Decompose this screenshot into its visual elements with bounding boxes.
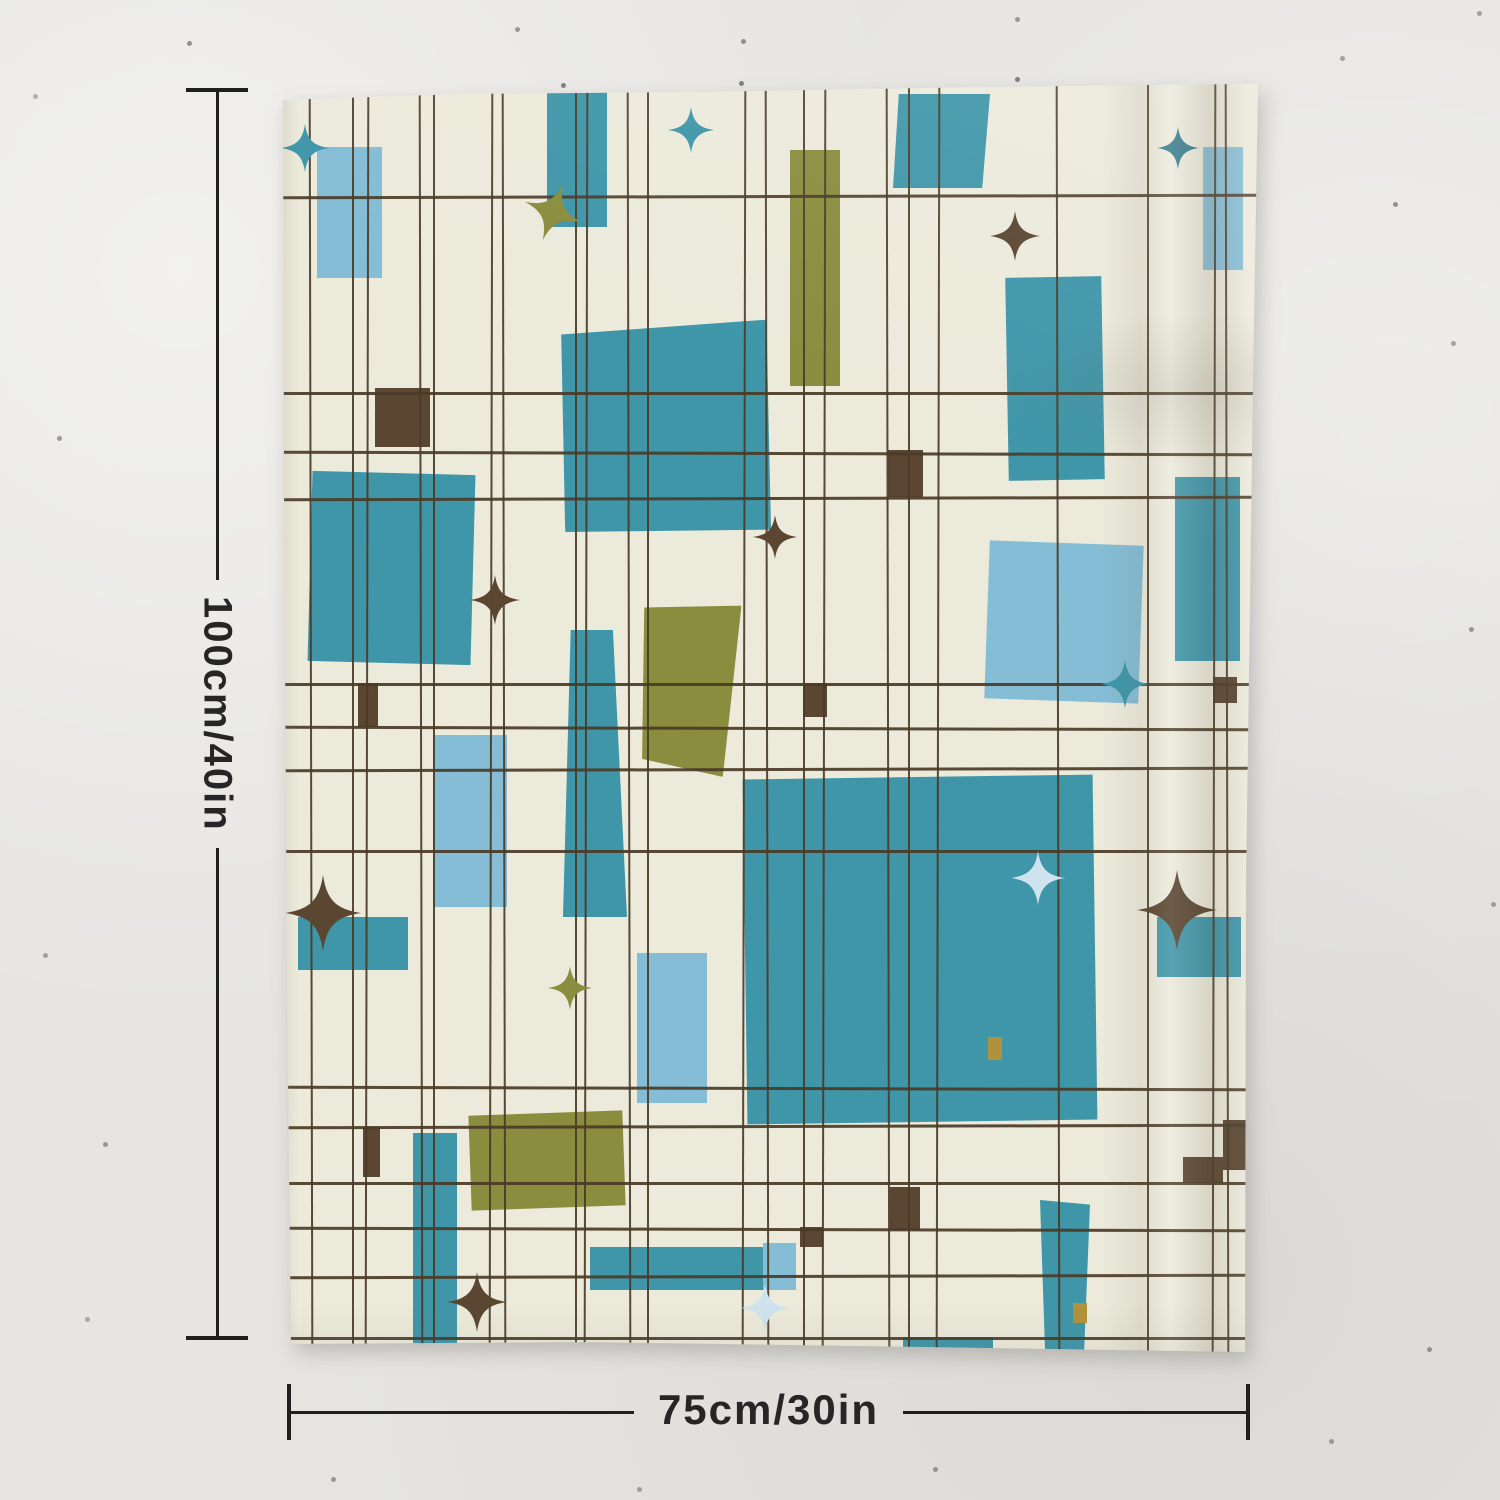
grid-vertical-line	[1147, 84, 1149, 1352]
pattern-rect	[636, 601, 742, 778]
tapestry-fabric	[283, 84, 1258, 1352]
starburst-icon	[1137, 870, 1217, 950]
pattern-rect	[988, 1037, 1002, 1060]
grid-vertical-line	[309, 84, 314, 1352]
tapestry	[283, 84, 1258, 1352]
pattern-rect	[590, 1247, 764, 1290]
grid-vertical-line	[352, 84, 354, 1352]
grid-horizontal-line	[283, 1337, 1258, 1340]
grid-vertical-line	[1056, 84, 1061, 1352]
grid-vertical-line	[936, 84, 941, 1352]
grid-vertical-line	[908, 84, 910, 1352]
starburst-icon	[283, 124, 329, 172]
grid-horizontal-line	[283, 392, 1258, 395]
grid-horizontal-line	[283, 1124, 1258, 1130]
width-dimension-label: 75cm/30in	[634, 1386, 903, 1434]
product-photo-scene: 100cm/40in 75cm/30in	[0, 0, 1500, 1500]
pattern-rect	[1005, 276, 1105, 481]
height-dimension-bottom-cap	[186, 1336, 248, 1340]
pattern-rect	[563, 630, 627, 917]
starburst-icon	[285, 875, 361, 951]
grid-vertical-line	[647, 84, 649, 1352]
pattern-rect	[1073, 1303, 1087, 1323]
pattern-rect	[1175, 477, 1240, 661]
grid-horizontal-line	[283, 726, 1258, 732]
height-dimension-line-lower	[216, 848, 219, 1336]
pattern-rect	[375, 388, 430, 447]
grid-vertical-line	[742, 84, 747, 1352]
starburst-icon	[753, 515, 797, 559]
pattern-rect	[890, 1187, 920, 1230]
pattern-rect	[743, 775, 1098, 1125]
starburst-icon	[447, 1272, 507, 1332]
starburst-icon	[470, 575, 520, 625]
grid-horizontal-line	[283, 767, 1258, 773]
starburst-icon	[548, 966, 592, 1010]
pattern-rect	[433, 735, 507, 907]
grid-vertical-line	[575, 84, 577, 1352]
grid-vertical-line	[803, 84, 805, 1352]
wall-speckles	[0, 0, 3, 3]
grid-horizontal-line	[283, 451, 1258, 457]
starburst-icon	[1101, 660, 1149, 708]
starburst-icon	[1011, 851, 1065, 905]
grid-vertical-line	[765, 84, 770, 1352]
starburst-icon	[741, 1284, 789, 1332]
starburst-icon	[1157, 127, 1199, 169]
height-dimension-label: 100cm/40in	[195, 580, 240, 848]
grid-horizontal-line	[283, 194, 1258, 200]
width-dimension-line-right	[903, 1411, 1246, 1414]
grid-vertical-line	[886, 84, 891, 1352]
grid-horizontal-line	[283, 1182, 1258, 1185]
height-dimension-line-upper	[216, 92, 219, 580]
pattern-rect	[1183, 1157, 1223, 1183]
pattern-rect	[1203, 147, 1243, 270]
tapestry-pattern	[283, 84, 1258, 1352]
starburst-icon	[668, 107, 714, 153]
grid-vertical-line	[627, 84, 632, 1352]
starburst-icon	[990, 211, 1040, 261]
pattern-rect	[790, 150, 840, 386]
grid-vertical-line	[433, 84, 435, 1352]
pattern-rect	[888, 450, 923, 497]
width-dimension-line-left	[291, 1411, 634, 1414]
height-dimension-annotation: 100cm/40in	[186, 88, 248, 1340]
width-dimension-annotation: 75cm/30in	[287, 1384, 1250, 1440]
width-dimension-right-tick	[1246, 1384, 1250, 1440]
grid-horizontal-line	[283, 850, 1258, 853]
